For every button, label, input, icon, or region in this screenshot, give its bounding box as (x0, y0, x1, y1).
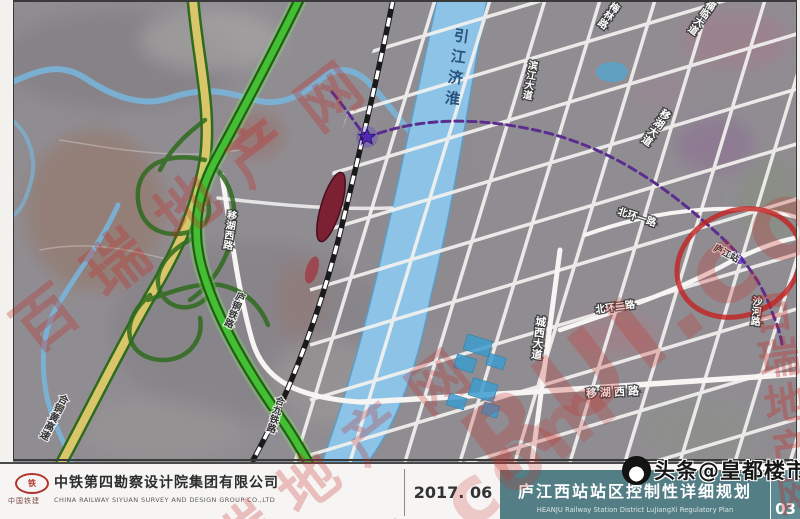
sheet-number: 03 (771, 470, 800, 519)
plan-date: 2017. 06 (404, 469, 501, 516)
company-block: 中铁第四勘察设计院集团有限公司 CHINA RAILWAY SIYUAN SUR… (54, 472, 404, 504)
map-canvas: 引江济淮 滨江大道 梅林路 福临大道 移湖大道 北环一路 北环二路 城西大道 移… (0, 0, 800, 462)
pond (596, 62, 628, 82)
plan-title-cn: 庐江西站站区控制性详细规划 (518, 478, 752, 502)
crsd-logo: 铁 (15, 473, 49, 494)
plan-title-block: 庐江西站站区控制性详细规划 HEANJU Railway Station Dis… (500, 470, 770, 519)
company-name-en: CHINA RAILWAY SIYUAN SURVEY AND DESIGN G… (54, 496, 404, 504)
logo-caption: 中国铁建 (8, 496, 40, 506)
left-scan-margin (0, 0, 13, 519)
yihu-west-rd-label-h: 移湖西路 (586, 383, 643, 400)
plan-title-en: HEANJU Railway Station District LuJiangX… (537, 506, 734, 514)
planning-map-screenshot: { "map": { "labels": { "canal": "引江济淮", … (0, 0, 800, 519)
title-block: 铁 中国铁建 中铁第四勘察设计院集团有限公司 CHINA RAILWAY SIY… (0, 462, 800, 519)
company-name-cn: 中铁第四勘察设计院集团有限公司 (54, 472, 404, 492)
